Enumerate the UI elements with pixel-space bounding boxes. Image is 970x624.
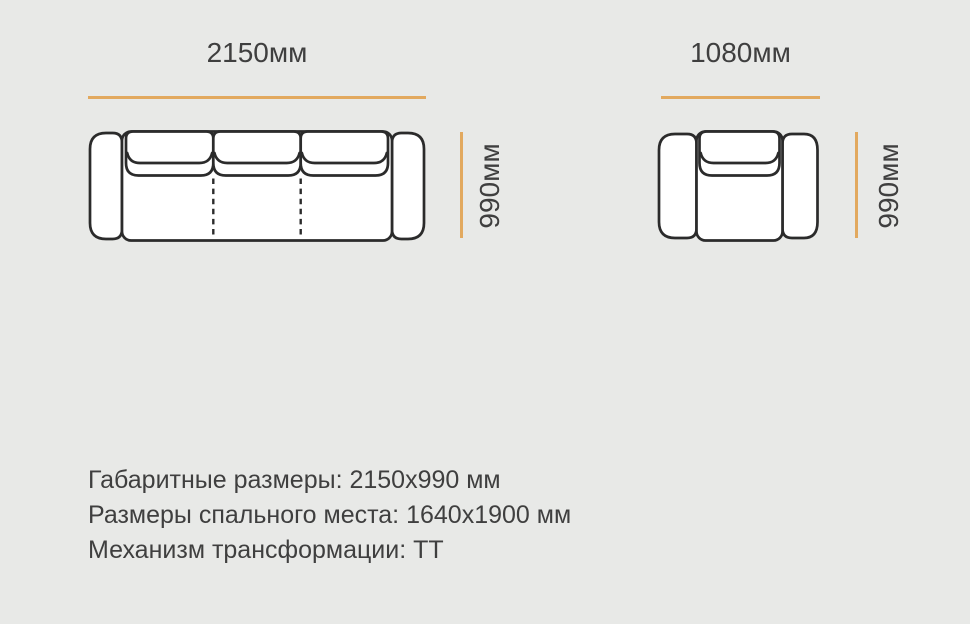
sofa-height-dimension-line	[460, 132, 463, 238]
sofa-top-view-diagram	[88, 130, 426, 242]
spec-line-sleeping-area: Размеры спального места: 1640x1900 мм	[88, 498, 571, 533]
armchair-height-label: 990мм	[874, 143, 904, 228]
armchair-width-label: 1080мм	[661, 38, 820, 68]
spec-line-mechanism: Механизм трансформации: ТТ	[88, 533, 571, 568]
armchair-width-dimension-line	[661, 96, 820, 99]
sofa-width-dimension-line	[88, 96, 426, 99]
armchair-right-armrest	[783, 134, 818, 238]
armchair-back-cushion	[700, 132, 780, 176]
sofa-back-cushion	[301, 132, 388, 176]
sofa-back-cushion	[126, 132, 213, 176]
sofa-left-armrest	[90, 133, 122, 239]
sofa-height-label: 990мм	[475, 143, 505, 228]
armchair-left-armrest	[659, 134, 697, 238]
armchair-top-view-diagram	[657, 130, 819, 242]
sofa-right-armrest	[392, 133, 424, 239]
sofa-width-label: 2150мм	[88, 38, 426, 68]
sofa-back-cushion	[213, 132, 300, 176]
product-specs: Габаритные размеры: 2150x990 мм Размеры …	[88, 463, 571, 568]
spec-line-overall-dimensions: Габаритные размеры: 2150x990 мм	[88, 463, 571, 498]
product-dimensions-panel: 2150мм 990мм 1080мм 990	[0, 0, 970, 624]
armchair-height-dimension-line	[855, 132, 858, 238]
